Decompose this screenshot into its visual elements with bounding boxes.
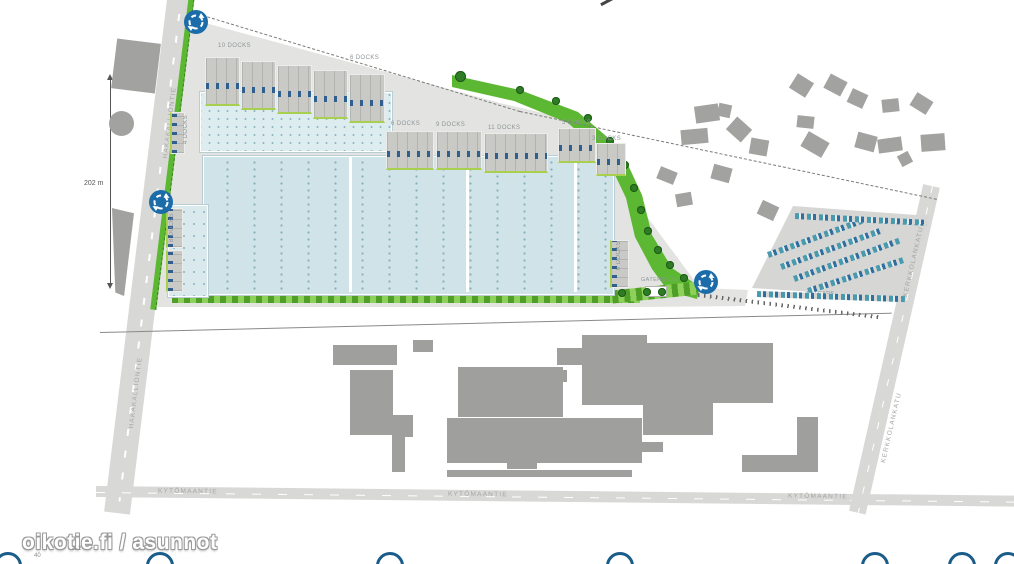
unit-separator (466, 157, 469, 292)
dock-count-label: 3 DOCKS (592, 136, 621, 142)
industrial-building (642, 442, 663, 452)
industrial-building (350, 370, 393, 435)
industrial-building (507, 463, 537, 469)
street-name-kytomaantie: KYTÖMAANTIE (448, 491, 508, 499)
dock-block (484, 133, 548, 173)
dock-block (436, 131, 482, 170)
footer-nav-circle (376, 552, 404, 564)
dock-count-label: 6 DOCKS (616, 241, 622, 270)
industrial-building (582, 335, 647, 405)
dimension-label: 202 m (84, 180, 103, 187)
dock-block (166, 250, 183, 292)
site-plan: 100 CARS GATEHOUSE 202 m KYTÖMAANTIE KYT… (0, 0, 1014, 564)
dimension-line (110, 77, 111, 287)
tree-icon (654, 246, 662, 254)
house-footprint (909, 92, 933, 115)
dock-count-label: 6 DOCKS (391, 121, 420, 127)
dock-count-label: 5 DOCKS (562, 120, 591, 126)
house-footprint (726, 116, 752, 142)
industrial-building (447, 418, 642, 463)
unit-separator (349, 157, 352, 292)
tree-icon (637, 206, 645, 214)
industrial-building (797, 417, 818, 472)
dock-block (596, 143, 626, 176)
dock-count-label: 6 DOCKS (350, 55, 379, 61)
industrial-building (647, 343, 773, 403)
dock-count-label: 10 DOCKS (218, 43, 251, 49)
house-footprint (823, 73, 847, 96)
dock-count-label: 9 DOCKS (436, 122, 465, 128)
gatehouse-label: GATEHOUSE (641, 277, 679, 283)
footer-nav-circle (0, 552, 22, 564)
house-footprint (796, 115, 814, 129)
house-footprint (800, 131, 829, 158)
tree-icon (630, 184, 638, 192)
footer-nav-circle (606, 552, 634, 564)
dock-block (277, 65, 312, 114)
house-footprint (656, 166, 678, 185)
industrial-building (333, 345, 397, 365)
watermark: oikotie.fi / asunnot (22, 531, 218, 555)
plan-note: A-2 (72, 546, 81, 552)
unit-separator (574, 157, 577, 292)
street-name-kytomaantie: KYTÖMAANTIE (158, 488, 218, 496)
boundary-south-line (100, 313, 892, 334)
house-footprint (789, 73, 814, 97)
roundabout-icon (693, 269, 719, 295)
tree-icon (516, 86, 524, 94)
house-footprint (680, 128, 708, 145)
house-footprint (749, 138, 770, 157)
industrial-building (643, 403, 713, 435)
house-footprint (847, 88, 869, 109)
top-edge-mark (600, 0, 614, 6)
roundabout-icon (183, 9, 209, 35)
tree-icon (455, 71, 466, 82)
house-footprint (920, 133, 945, 152)
footer-nav-circle (994, 552, 1014, 564)
tree-icon (666, 261, 674, 269)
roundabout-icon (148, 189, 174, 215)
dimension-arrow-down (107, 283, 113, 289)
dock-block (313, 70, 348, 119)
tree-icon (552, 97, 560, 105)
house-footprint (877, 136, 903, 153)
road-bottom (96, 486, 1014, 507)
footer-nav-circle (861, 552, 889, 564)
house-footprint (717, 103, 732, 118)
dock-block (349, 74, 385, 123)
tree-icon (644, 227, 652, 235)
industrial-building (413, 340, 433, 352)
industrial-building (392, 437, 405, 472)
tree-icon (618, 289, 626, 297)
dock-block (558, 128, 596, 163)
dock-count-label: 8 DOCKS (169, 213, 175, 242)
dock-block (241, 61, 276, 110)
neighbor-building (111, 39, 161, 94)
house-footprint (710, 164, 732, 183)
house-footprint (675, 192, 693, 208)
industrial-building (392, 415, 413, 437)
industrial-building (540, 370, 567, 382)
tree-icon (658, 288, 666, 296)
house-footprint (757, 200, 780, 221)
dock-block (205, 57, 240, 106)
dock-block (386, 131, 434, 170)
neighbor-wedge-building (112, 208, 134, 296)
road-centerline (96, 492, 1014, 503)
industrial-building (447, 470, 632, 477)
dock-count-label: 11 DOCKS (488, 125, 520, 131)
house-footprint (854, 132, 877, 153)
tree-icon (680, 274, 688, 282)
green-strip-south (172, 295, 640, 303)
street-name-kytomaantie: KYTÖMAANTIE (788, 493, 848, 501)
footer-nav-circle (948, 552, 976, 564)
dock-count-label: 4 DOCKS (183, 115, 189, 144)
industrial-building (557, 348, 582, 365)
neighbor-silo (109, 111, 134, 136)
house-footprint (897, 151, 913, 167)
tree-icon (643, 288, 651, 296)
warehouse-main-hall (203, 156, 614, 295)
house-footprint (881, 98, 899, 113)
plan-note: 40 (34, 553, 41, 559)
